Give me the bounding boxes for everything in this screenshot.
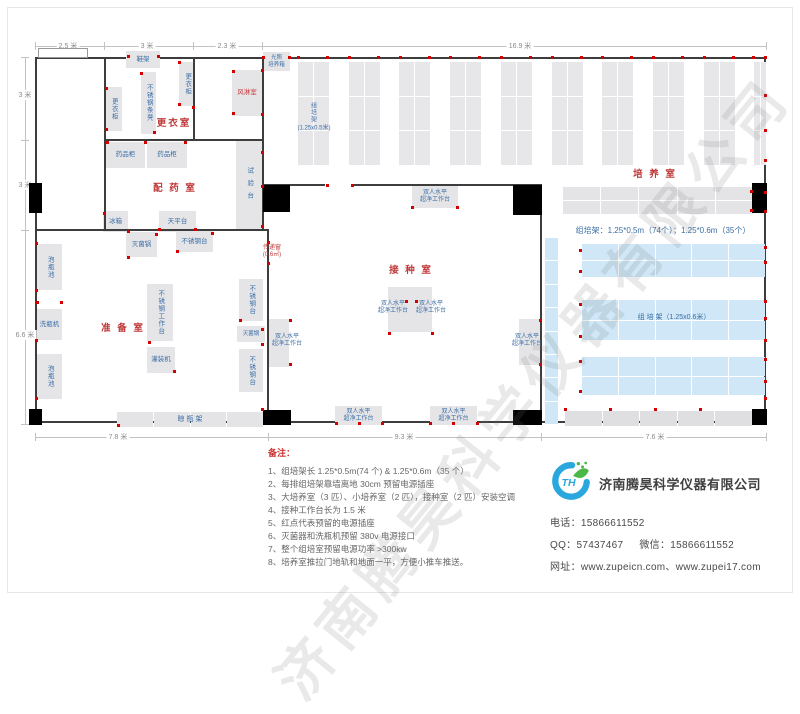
power-socket-dot [103, 212, 106, 215]
dim-tick [21, 230, 29, 231]
power-socket-dot [764, 159, 767, 162]
power-socket-dot [144, 141, 147, 144]
culture-rack-column [399, 62, 430, 165]
wall [262, 184, 542, 186]
qq-label: QQ： [550, 540, 576, 551]
sliding-door [29, 183, 42, 213]
power-socket-dot [377, 56, 380, 59]
dim-tick [21, 57, 29, 58]
rack-grid [582, 244, 765, 277]
rack-grid [565, 411, 752, 426]
power-socket-dot [267, 262, 270, 265]
power-socket-dot [551, 56, 554, 59]
power-socket-dot [173, 370, 176, 373]
power-socket-dot [630, 56, 633, 59]
plan-label: 组培架(1.25x0.5米) [297, 104, 330, 133]
power-socket-dot [288, 56, 291, 59]
power-socket-dot [579, 390, 582, 393]
power-socket-dot [529, 56, 532, 59]
notes-title: 备注： [268, 446, 560, 459]
power-socket-dot [261, 408, 264, 411]
dim-tick [104, 42, 105, 50]
power-socket-dot [60, 301, 63, 304]
power-socket-dot [105, 87, 108, 90]
dim-tick [21, 424, 29, 425]
rack-grid [582, 357, 765, 395]
power-socket-dot [262, 56, 265, 59]
phone-label: 电话： [550, 518, 581, 529]
power-socket-dot [703, 56, 706, 59]
power-socket-dot [289, 363, 292, 366]
power-socket-dot [261, 69, 264, 72]
power-socket-dot [148, 341, 151, 344]
power-socket-dot [267, 241, 270, 244]
power-socket-dot [764, 261, 767, 264]
culture-rack-column [754, 62, 766, 165]
power-socket-dot [153, 131, 156, 134]
sterilizer: 灭菌锅 [126, 232, 157, 257]
culture-rack-column [349, 62, 380, 165]
dimension-label: 16.9 米 [507, 41, 534, 51]
dim-tick [35, 433, 36, 441]
sliding-door [513, 410, 542, 425]
company-logo-icon: TH [550, 460, 592, 507]
wall-opening [325, 181, 353, 188]
note-item: 7、整个组培室预留电源功率 >300kw [268, 543, 560, 556]
power-socket-dot [579, 270, 582, 273]
dim-tick [193, 42, 194, 50]
power-socket-dot [155, 233, 158, 236]
power-socket-dot [456, 206, 459, 209]
power-socket-dot [326, 56, 329, 59]
power-socket-dot [764, 129, 767, 132]
note-item: 3、大培养室（3 匹）、小培养室（2 匹），接种室（2 匹）安装空调 [268, 491, 560, 504]
power-socket-dot [388, 332, 391, 335]
power-socket-dot [429, 422, 432, 425]
wall [35, 229, 268, 231]
room-label-changing-room: 更衣室 [157, 115, 192, 129]
plan-label: 双人水平超净工作台 [512, 334, 542, 348]
power-socket-dot [232, 70, 235, 73]
medicine-cabinet: 药品柜 [106, 142, 145, 168]
svg-text:TH: TH [562, 477, 576, 489]
dimension-label: 3 米 [17, 90, 34, 100]
culture-rack-column [653, 62, 684, 165]
power-socket-dot [335, 422, 338, 425]
power-socket-dot [399, 56, 402, 59]
room-label-prep-room: 准 备 室 [101, 320, 145, 334]
sliding-door [513, 185, 542, 215]
power-socket-dot [35, 289, 38, 292]
power-socket-dot [431, 332, 434, 335]
soaking-pool: 泡瓶池 [37, 354, 62, 399]
power-socket-dot [449, 56, 452, 59]
power-socket-dot [564, 408, 567, 411]
power-socket-dot [500, 56, 503, 59]
rack-grid [563, 187, 753, 214]
room-label-inoculation-room: 接 种 室 [389, 262, 433, 276]
qq-value: 57437467 [576, 540, 623, 551]
dim-tick [35, 42, 36, 50]
dimension-label: 6.6 米 [14, 330, 37, 340]
stainless-worktable: 不锈钢工作台 [147, 284, 173, 341]
power-socket-dot [654, 408, 657, 411]
power-socket-dot [750, 190, 753, 193]
power-socket-dot [681, 56, 684, 59]
culture-rack-column [450, 62, 481, 165]
power-socket-dot [609, 408, 612, 411]
plan-label: 双人水平超净工作台 [378, 301, 408, 315]
note-item: 4、接种工作台长为 1.5 米 [268, 504, 560, 517]
dim-tick [766, 433, 767, 441]
power-socket-dot [764, 339, 767, 342]
power-socket-dot [127, 230, 130, 233]
company-name: 济南腾昊科学仪器有限公司 [599, 474, 761, 493]
power-socket-dot [764, 358, 767, 361]
power-socket-dot [452, 422, 455, 425]
power-socket-dot [35, 339, 38, 342]
culture-rack-column [552, 62, 583, 165]
power-socket-dot [752, 56, 755, 59]
test-bench: 试验台 [236, 141, 262, 230]
plan-label: 传递窗(0.6㎡) [263, 245, 281, 259]
plan-label: 组培架：1.25*0.5m（74个）；1.25*0.6m（35个） [576, 226, 751, 236]
dimension-label: 2.3 米 [216, 41, 239, 51]
power-socket-dot [351, 184, 354, 187]
note-item: 6、灭菌器和洗瓶机预留 380v 电源接口 [268, 530, 560, 543]
power-socket-dot [239, 319, 242, 322]
web-value: www.zupeicn.com、www.zupei17.com [581, 562, 761, 573]
note-item: 8、培养室推拉门地轨和地面一平，方便小推车推送。 [268, 556, 560, 569]
power-socket-dot [157, 55, 160, 58]
dim-tick [262, 42, 263, 50]
notes-section: 备注： 1、组培架长 1.25*0.5m(74 个) & 1.25*0.6m（3… [268, 446, 560, 569]
sliding-door [29, 409, 42, 425]
power-socket-dot [764, 317, 767, 320]
power-socket-dot [127, 55, 130, 58]
power-socket-dot [106, 141, 109, 144]
light-incubator: 光照培养箱 [263, 52, 290, 71]
power-socket-dot [297, 56, 300, 59]
soaking-pool: 泡瓶池 [37, 244, 62, 290]
dim-tick [541, 433, 542, 441]
power-socket-dot [211, 232, 214, 235]
power-socket-dot [194, 228, 197, 231]
culture-rack-column [602, 62, 633, 165]
stainless-bench: 不锈钢条凳 [141, 72, 156, 134]
sliding-door [752, 183, 767, 213]
web-label: 网址： [550, 562, 581, 573]
dim-tick [21, 140, 29, 141]
power-socket-dot [579, 360, 582, 363]
power-socket-dot [192, 106, 195, 109]
contact-phone-line: 电话：15866611552 [550, 514, 795, 529]
room-label-culture-room: 培 养 室 [633, 166, 677, 180]
power-socket-dot [750, 209, 753, 212]
power-socket-dot [764, 56, 767, 59]
power-socket-dot [764, 300, 767, 303]
power-socket-dot [579, 303, 582, 306]
wall [193, 57, 195, 140]
power-socket-dot [601, 56, 604, 59]
power-socket-dot [289, 319, 292, 322]
power-socket-dot [184, 141, 187, 144]
clean-bench: 双人水平超净工作台 [412, 186, 458, 208]
power-socket-dot [35, 242, 38, 245]
power-socket-dot [764, 246, 767, 249]
filling-machine: 灌装机 [147, 347, 175, 373]
power-socket-dot [652, 56, 655, 59]
dimension-label: 9.3 米 [393, 432, 416, 442]
plan-label: 组 培 架（1.25x0.6米） [638, 314, 711, 322]
power-socket-dot [764, 397, 767, 400]
phone-value: 15866611552 [581, 518, 645, 529]
shoe-rack: 鞋架 [126, 51, 160, 68]
sliding-door [263, 185, 290, 212]
wechat-value: 15866611552 [670, 540, 734, 551]
sliding-door [752, 409, 767, 425]
bottle-washer: 洗瓶机 [37, 309, 62, 340]
rack-grid [545, 238, 558, 424]
power-socket-dot [579, 249, 582, 252]
plan-label: 晾 瓶 架 [178, 416, 203, 424]
dim-line-left [25, 57, 26, 424]
power-socket-dot [158, 228, 161, 231]
sliding-door [263, 410, 291, 425]
power-socket-dot [35, 397, 38, 400]
note-item: 1、组培架长 1.25*0.5m(74 个) & 1.25*0.6m（35 个） [268, 465, 560, 478]
power-socket-dot [117, 424, 120, 427]
power-socket-dot [764, 210, 767, 213]
culture-rack-column [501, 62, 532, 165]
power-socket-dot [539, 319, 542, 322]
wechat-label: 微信： [639, 540, 670, 551]
culture-rack-column [704, 62, 735, 165]
stainless-table: 不锈钢台 [239, 349, 263, 392]
locker: 更衣柜 [105, 87, 122, 131]
power-socket-dot [261, 113, 264, 116]
stainless-table: 不锈钢台 [176, 231, 213, 252]
power-socket-dot [326, 184, 329, 187]
power-socket-dot [539, 363, 542, 366]
wall [540, 184, 542, 425]
power-socket-dot [348, 56, 351, 59]
power-socket-dot [764, 191, 767, 194]
power-socket-dot [261, 225, 264, 228]
window [38, 48, 88, 58]
contact-section: TH 济南腾昊科学仪器有限公司 电话：15866611552 QQ：574374… [550, 460, 795, 573]
power-socket-dot [478, 56, 481, 59]
power-socket-dot [476, 422, 479, 425]
dimension-label: 3 米 [139, 41, 156, 51]
dimension-label: 7.8 米 [107, 432, 130, 442]
power-socket-dot [764, 94, 767, 97]
power-socket-dot [36, 301, 39, 304]
power-socket-dot [381, 422, 384, 425]
power-socket-dot [176, 250, 179, 253]
room-label-medicine-prep-room: 配 药 室 [153, 180, 197, 194]
power-socket-dot [358, 422, 361, 425]
air-shower-room: 风淋室 [232, 70, 262, 116]
power-socket-dot [261, 185, 264, 188]
power-socket-dot [261, 343, 264, 346]
medicine-cabinet: 药品柜 [147, 142, 187, 168]
contact-qq-line: QQ：57437467微信：15866611552 [550, 536, 795, 551]
power-socket-dot [178, 61, 181, 64]
power-socket-dot [178, 103, 181, 106]
plan-label: 双人水平超净工作台 [416, 301, 446, 315]
power-socket-dot [428, 56, 431, 59]
brand-row: TH 济南腾昊科学仪器有限公司 [550, 460, 795, 507]
power-socket-dot [411, 206, 414, 209]
power-socket-dot [232, 112, 235, 115]
stainless-table: 不锈钢台 [239, 279, 263, 321]
plan-label: 双人水平超净工作台 [272, 334, 302, 348]
dimension-label: 7.6 米 [644, 432, 667, 442]
dim-tick [766, 42, 767, 50]
power-socket-dot [764, 380, 767, 383]
power-socket-dot [580, 56, 583, 59]
power-socket-dot [261, 328, 264, 331]
power-socket-dot [732, 56, 735, 59]
power-socket-dot [261, 151, 264, 154]
power-socket-dot [579, 335, 582, 338]
power-socket-dot [105, 128, 108, 131]
dim-tick [268, 433, 269, 441]
power-socket-dot [699, 408, 702, 411]
power-socket-dot [127, 256, 130, 259]
note-item: 2、每排组培架靠墙离地 30cm 预留电源插座 [268, 478, 560, 491]
note-item: 5、红点代表预留的电源插座 [268, 517, 560, 530]
power-socket-dot [140, 72, 143, 75]
contact-web-line: 网址：www.zupeicn.com、www.zupei17.com [550, 558, 795, 573]
